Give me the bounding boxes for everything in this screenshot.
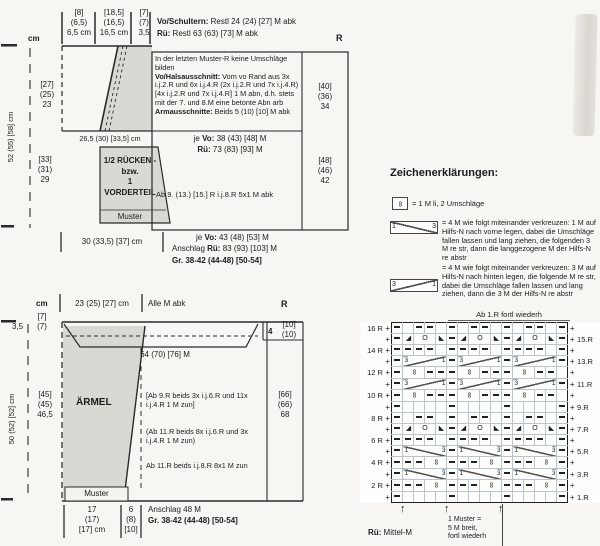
chart-cell [513, 435, 524, 446]
chart-cell: 31 [513, 356, 557, 367]
chart-cell [447, 334, 458, 345]
cable-number: 1 [459, 469, 463, 479]
chart-cell [491, 367, 502, 379]
purl-dash-icon [559, 449, 565, 451]
chart-cell [502, 435, 513, 446]
purl-dash-icon [537, 438, 543, 440]
decrease-triangle-icon: ◢ [458, 334, 469, 345]
chart-cell: 13 [513, 446, 557, 457]
chart-row-label: 13.R [576, 356, 600, 367]
chart-row-label [576, 413, 600, 424]
decrease-triangle-icon: ◢ [403, 334, 414, 345]
sleeve-rowcount-topright-a: 4 [268, 327, 272, 337]
chart-cell: ∞ [535, 480, 557, 492]
yarnover-cell: O [524, 334, 546, 345]
back-side-length: 52 (55) [58] cm [6, 92, 16, 182]
chart-edge-mark: + [384, 367, 392, 379]
chart-cell [557, 457, 568, 469]
double-yarnover-icon: ∞ [541, 459, 551, 465]
chart-cell [480, 413, 491, 424]
purl-dash-icon [504, 472, 510, 474]
purl-dash-icon [449, 337, 455, 339]
chart-cell [392, 334, 403, 345]
chart-cell [392, 457, 403, 469]
purl-dash-icon [460, 348, 466, 350]
chart-repeat-note: Ab 1.R fortl wiederh [448, 310, 570, 321]
chart-cell [557, 390, 568, 402]
chart-cell [414, 480, 425, 492]
purl-dash-icon [504, 495, 510, 497]
chart-edge-mark: + [568, 367, 576, 379]
purl-dash-icon [394, 371, 400, 373]
decrease-triangle-icon: ◣ [491, 334, 502, 345]
chart-cell [524, 435, 535, 446]
sleeve-increase-2: (Ab 11.R beids 8x i.j.6.R und 3x i.j.4.R… [146, 428, 264, 446]
chart-cell [502, 424, 513, 435]
cable-number: 1 [404, 469, 408, 479]
chart-edge-mark: + [384, 457, 392, 469]
decrease-triangle-icon: ◣ [546, 334, 557, 345]
cable-back-icon: 3 1 [390, 279, 438, 292]
back-shoulder-note-vo: Vo/Schultern: Restl 24 (24) [27] M abk [157, 17, 296, 27]
decrease-triangle-icon: ◢ [513, 424, 524, 435]
back-measure-3: [7] (7) 3,5 [132, 8, 156, 38]
purl-dash-icon [394, 484, 400, 486]
chart-edge-mark: + [568, 469, 576, 480]
chart-cell [392, 323, 403, 334]
purl-dash-icon [449, 461, 455, 463]
chart-row-label [360, 424, 384, 435]
cable-number: 1 [459, 446, 463, 456]
cable-number: 3 [459, 379, 463, 389]
chart-cell [480, 323, 491, 334]
chart-cell [524, 457, 535, 469]
chart-cell [392, 367, 403, 379]
purl-dash-icon [427, 438, 433, 440]
purl-dash-icon [394, 416, 400, 418]
chart-cell [469, 435, 480, 446]
cable-number: 1 [552, 379, 556, 389]
purl-dash-icon [482, 348, 488, 350]
chart-edge-mark: + [568, 390, 576, 402]
chart-cell [557, 345, 568, 356]
chart-cell [425, 435, 436, 446]
purl-dash-icon [482, 416, 488, 418]
chart-row-label [360, 379, 384, 390]
cable-front-left-number: 1 [392, 222, 396, 232]
yarnover-cell: O [414, 424, 436, 435]
chart-edge-mark: + [384, 323, 392, 334]
chart-cell [513, 492, 524, 503]
chart-cell: 13 [403, 446, 447, 457]
purl-dash-icon [515, 348, 521, 350]
chart-cell [414, 323, 425, 334]
chart-cell: 31 [403, 356, 447, 367]
chart-cell [414, 413, 425, 424]
purl-dash-icon [559, 359, 565, 361]
sleeve-increase-1: [Ab 9.R beids 3x i.j.6.R und 11x i.j.4.R… [146, 392, 264, 410]
chart-cell [557, 469, 568, 480]
decrease-triangle-icon: ◢ [458, 424, 469, 435]
purl-dash-icon [482, 394, 488, 396]
back-bindoff-line: Ab 9. (13.) [15.] R i.j.8.R 5x1 M abk [156, 190, 273, 200]
chart-cell [414, 402, 425, 413]
chart-edge-mark: + [384, 345, 392, 356]
chart-cell [447, 345, 458, 356]
chart-cell: ∞ [458, 390, 480, 402]
purl-dash-icon [394, 382, 400, 384]
cable-front-right-number: 3 [432, 222, 436, 232]
cable-back-right-number: 1 [432, 280, 436, 290]
sleeve-anschlag: Anschlag 48 M [148, 505, 201, 515]
chart-cell [447, 323, 458, 334]
purl-dash-icon [449, 359, 455, 361]
chart-cell [535, 390, 546, 402]
purl-dash-icon [504, 348, 510, 350]
purl-dash-icon [405, 484, 411, 486]
chart-cell [524, 345, 535, 356]
chart-cell [447, 413, 458, 424]
purl-dash-icon [526, 461, 532, 463]
chart-cell [535, 367, 546, 379]
chart-cell [502, 323, 513, 334]
chart-row-label [576, 457, 600, 469]
purl-dash-icon [504, 394, 510, 396]
chart-cell: 13 [458, 469, 502, 480]
chart-cell [480, 367, 491, 379]
purl-dash-icon [515, 461, 521, 463]
cable-number: 3 [497, 446, 501, 456]
cable-number: 3 [442, 469, 446, 479]
cable-number: 1 [552, 356, 556, 366]
chart-cell [458, 457, 469, 469]
sleeve-counts: [66] (66) 68 [267, 390, 303, 420]
purl-dash-icon [526, 438, 532, 440]
purl-dash-icon [526, 348, 532, 350]
sleeve-cm-label: cm [36, 299, 48, 309]
chart-cell [392, 469, 403, 480]
decrease-triangle-icon: ◢ [403, 424, 414, 435]
decrease-triangle-icon: ◣ [436, 424, 447, 435]
chart-row-label [576, 323, 600, 334]
cable-back-left-number: 3 [392, 280, 396, 290]
chart-cell [557, 435, 568, 446]
purl-dash-icon [438, 371, 444, 373]
double-yarnover-icon: ∞ [519, 392, 529, 398]
purl-dash-icon [471, 326, 477, 328]
cable-number: 1 [514, 446, 518, 456]
chart-cell [447, 402, 458, 413]
chart-row-label: 11.R [576, 379, 600, 390]
chart-edge-mark: + [384, 492, 392, 503]
chart-cell [557, 323, 568, 334]
purl-dash-icon [537, 394, 543, 396]
chart-cell [557, 379, 568, 390]
chart-cell [447, 390, 458, 402]
purl-dash-icon [427, 326, 433, 328]
chart-cell [436, 345, 447, 356]
purl-dash-icon [471, 416, 477, 418]
chart-cell [502, 492, 513, 503]
cable-number: 3 [459, 356, 463, 366]
sleeve-alle-abk: Alle M abk [148, 299, 185, 309]
purl-dash-icon [559, 382, 565, 384]
chart-edge-mark: + [384, 435, 392, 446]
double-yarnover-icon: ∞ [519, 369, 529, 375]
purl-dash-icon [427, 371, 433, 373]
purl-dash-icon [449, 371, 455, 373]
chart-cell [524, 323, 535, 334]
chart-cell [469, 323, 480, 334]
purl-dash-icon [559, 495, 565, 497]
up-arrow-icon: ↑ [444, 504, 450, 515]
chart-cell [403, 323, 414, 334]
chart-cell: 13 [403, 469, 447, 480]
double-yarnover-icon: ∞ [392, 197, 408, 210]
chart-cell: ∞ [403, 367, 425, 379]
chart-cell [491, 323, 502, 334]
chart-cell [502, 480, 513, 492]
back-note-line2: Vo/Halsausschnitt: Vom vo Rand aus 3x i.… [155, 73, 299, 108]
chart-cell [458, 323, 469, 334]
chart-edge-mark: + [384, 413, 392, 424]
chart-cell [425, 367, 436, 379]
chart-row-label: 2 R [360, 480, 384, 492]
chart-cell [436, 413, 447, 424]
chart-cell [425, 492, 436, 503]
chart-cell [546, 492, 557, 503]
chart-cell [436, 367, 447, 379]
chart-cell: 13 [458, 446, 502, 457]
chart-cell [392, 379, 403, 390]
chart-cell [458, 435, 469, 446]
chart-row-label: 5.R [576, 446, 600, 457]
chart-cell [447, 446, 458, 457]
chart-cell [425, 345, 436, 356]
sleeve-piece-label: ÄRMEL [76, 398, 112, 408]
cable-number: 3 [514, 356, 518, 366]
chart-cell [436, 435, 447, 446]
sleeve-sizes: Gr. 38-42 (44-48) [50-54] [148, 516, 238, 526]
chart-edge-mark: + [568, 402, 576, 413]
chart-row-label: 10 R [360, 390, 384, 402]
cable-number: 1 [497, 379, 501, 389]
chart-cell [513, 413, 524, 424]
chart-cell [447, 480, 458, 492]
purl-dash-icon [405, 438, 411, 440]
chart-row-label: 1.R [576, 492, 600, 503]
back-sts-vo: je Vo: 38 (43) [48] M [160, 134, 300, 144]
purl-dash-icon [504, 371, 510, 373]
chart-cell: ∞ [480, 480, 502, 492]
purl-dash-icon [449, 416, 455, 418]
purl-dash-icon [460, 438, 466, 440]
purl-dash-icon [526, 484, 532, 486]
purl-dash-icon [449, 405, 455, 407]
chart-edge-mark: + [384, 480, 392, 492]
purl-dash-icon [559, 326, 565, 328]
chart-row-label [576, 480, 600, 492]
sleeve-rowcount-topleft2: 3,5 [12, 322, 23, 332]
back-sizes: Gr. 38-42 (44-48) [50-54] [172, 256, 262, 266]
chart-edge-mark: + [568, 492, 576, 503]
sleeve-increase-3: Ab 11.R beids i.j.8.R 8x1 M zun [146, 462, 266, 471]
purl-dash-icon [394, 359, 400, 361]
purl-dash-icon [471, 461, 477, 463]
back-bottom-width: 30 (33,5) [37] cm [66, 237, 158, 247]
decrease-triangle-icon: ◣ [491, 424, 502, 435]
purl-dash-icon [416, 484, 422, 486]
legend-item3-text: = 4 M wie folgt miteinander verkreuzen: … [442, 264, 598, 299]
double-yarnover-icon: ∞ [431, 459, 441, 465]
chart-cell [469, 402, 480, 413]
chart-cell [491, 413, 502, 424]
chart-cell [447, 492, 458, 503]
chart-cell [513, 345, 524, 356]
chart-edge-mark: + [384, 379, 392, 390]
cable-number: 1 [442, 379, 446, 389]
chart-cell [392, 424, 403, 435]
infinity-glyph: ∞ [395, 201, 405, 207]
chart-edge-mark: + [568, 424, 576, 435]
chart-row-label [360, 356, 384, 367]
chart-cell [458, 413, 469, 424]
chart-cell [502, 356, 513, 367]
back-rowcount-lower: [33] (31) 29 [32, 155, 58, 185]
purl-dash-icon [394, 461, 400, 463]
purl-dash-icon [394, 472, 400, 474]
chart-row-label: 4 R [360, 457, 384, 469]
purl-dash-icon [449, 449, 455, 451]
chart-edge-mark: + [568, 457, 576, 469]
knitting-pattern-page: cm [8] (6,5) 6,5 cm [18,5] (16,5) 16,5 c… [0, 0, 600, 546]
purl-dash-icon [405, 348, 411, 350]
chart-row-label [360, 402, 384, 413]
chart-cell [524, 492, 535, 503]
back-note-line3: Armausschnitte: Beids 5 (10) [10] M abk [155, 108, 299, 117]
chart-cell [502, 446, 513, 457]
purl-dash-icon [394, 394, 400, 396]
chart-cell [513, 480, 524, 492]
back-measure-1: [8] (6,5) 6,5 cm [62, 8, 96, 38]
chart-row-label: 7.R [576, 424, 600, 435]
repeat-divider-line [502, 504, 503, 546]
purl-dash-icon [471, 438, 477, 440]
chart-cell [480, 345, 491, 356]
purl-dash-icon [493, 371, 499, 373]
chart-cell [491, 390, 502, 402]
purl-dash-icon [548, 371, 554, 373]
chart-cell [392, 356, 403, 367]
back-shoulder-note-rue: Rü: Restl 63 (63) [73] M abk [157, 29, 258, 39]
purl-dash-icon [559, 427, 565, 429]
cable-number: 3 [497, 469, 501, 479]
chart-cell [425, 413, 436, 424]
purl-dash-icon [559, 484, 565, 486]
chart-cell [392, 446, 403, 457]
chart-cell [403, 413, 414, 424]
purl-dash-icon [559, 461, 565, 463]
purl-dash-icon [449, 472, 455, 474]
sleeve-rows-column-header: R [281, 299, 288, 309]
cable-number: 3 [442, 446, 446, 456]
purl-dash-icon [504, 359, 510, 361]
purl-dash-icon [394, 495, 400, 497]
purl-dash-icon [460, 484, 466, 486]
chart-cell [502, 379, 513, 390]
chart-cell [557, 356, 568, 367]
chart-row-label: 6 R [360, 435, 384, 446]
chart-cell [502, 367, 513, 379]
chart-cell [425, 402, 436, 413]
purl-dash-icon [416, 326, 422, 328]
purl-dash-icon [548, 394, 554, 396]
purl-dash-icon [394, 449, 400, 451]
chart-cell [469, 413, 480, 424]
purl-dash-icon [449, 495, 455, 497]
chart-cell [480, 402, 491, 413]
chart-cell [502, 469, 513, 480]
chart-cell [480, 435, 491, 446]
yarnover-cell: O [469, 424, 491, 435]
chart-row-label [576, 435, 600, 446]
chart-cell [447, 435, 458, 446]
chart-cell [535, 492, 546, 503]
chart-cell [502, 413, 513, 424]
chart-row-label [576, 367, 600, 379]
purl-dash-icon [438, 394, 444, 396]
chart-cell [403, 345, 414, 356]
purl-dash-icon [515, 484, 521, 486]
chart-cell [546, 402, 557, 413]
purl-dash-icon [394, 405, 400, 407]
chart-cell [557, 367, 568, 379]
decrease-triangle-icon: ◢ [513, 334, 524, 345]
purl-dash-icon [504, 427, 510, 429]
chart-cell [436, 390, 447, 402]
purl-dash-icon [559, 337, 565, 339]
purl-dash-icon [559, 438, 565, 440]
purl-dash-icon [482, 438, 488, 440]
chart-cell [447, 457, 458, 469]
purl-dash-icon [504, 461, 510, 463]
chart-cell [491, 492, 502, 503]
chart-cell [546, 323, 557, 334]
cable-number: 3 [552, 446, 556, 456]
chart-cell [535, 345, 546, 356]
purl-dash-icon [537, 416, 543, 418]
chart-cell [392, 345, 403, 356]
sleeve-rowcount-topleft: [7] (7) [30, 312, 54, 332]
chart-cell [557, 446, 568, 457]
purl-dash-icon [449, 427, 455, 429]
back-rows-column-header: R [336, 33, 343, 43]
chart-cell [436, 323, 447, 334]
chart-edge-mark: + [568, 413, 576, 424]
purl-dash-icon [537, 371, 543, 373]
purl-dash-icon [416, 416, 422, 418]
chart-edge-mark: + [568, 334, 576, 345]
back-neck-instructions: In der letzten Muster-R keine Umschläge … [155, 55, 299, 117]
back-counts-upper: [40] (36) 34 [302, 82, 348, 112]
chart-cell [524, 480, 535, 492]
chart-edge-mark: + [568, 435, 576, 446]
chart-grid: 16 R+++◢O◣◢O◣◢O◣+15.R14 R+++313131+13.R1… [360, 322, 600, 503]
sleeve-top-width: 23 (25) [27] cm [62, 299, 142, 309]
chart-cell [502, 390, 513, 402]
chart-edge-mark: + [568, 446, 576, 457]
purl-dash-icon [449, 326, 455, 328]
